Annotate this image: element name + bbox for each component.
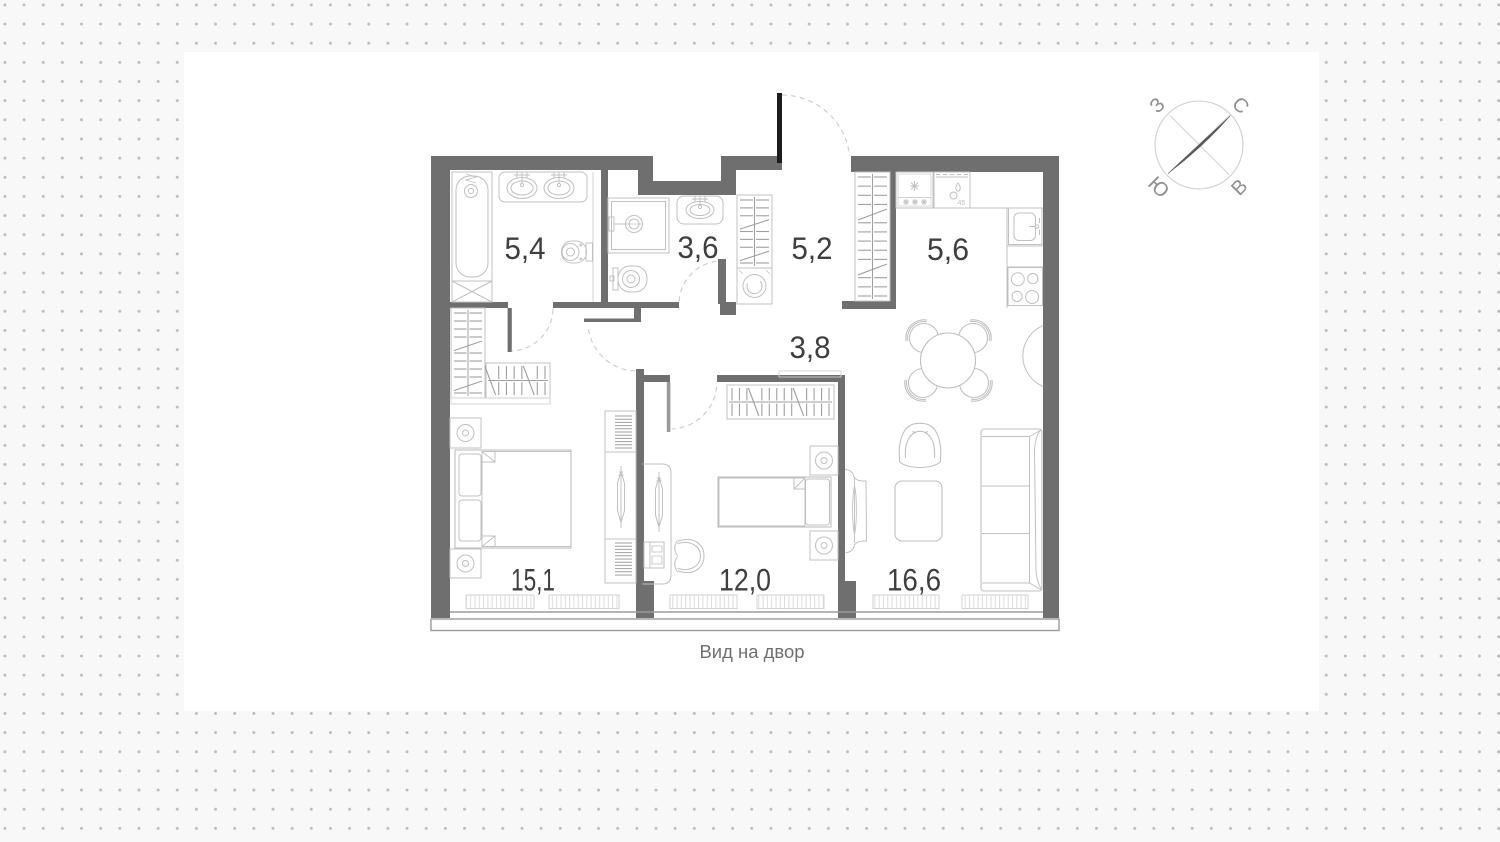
svg-text:5,6: 5,6 [927,231,969,267]
svg-text:16,6: 16,6 [887,562,941,598]
svg-text:5,4: 5,4 [505,230,546,266]
svg-text:12,0: 12,0 [719,562,771,598]
svg-text:Вид на двор: Вид на двор [700,642,805,662]
svg-text:15,1: 15,1 [511,562,555,598]
svg-text:3,8: 3,8 [790,329,831,365]
svg-text:3,6: 3,6 [678,229,719,265]
svg-text:45: 45 [958,200,966,207]
svg-text:5,2: 5,2 [792,230,833,266]
